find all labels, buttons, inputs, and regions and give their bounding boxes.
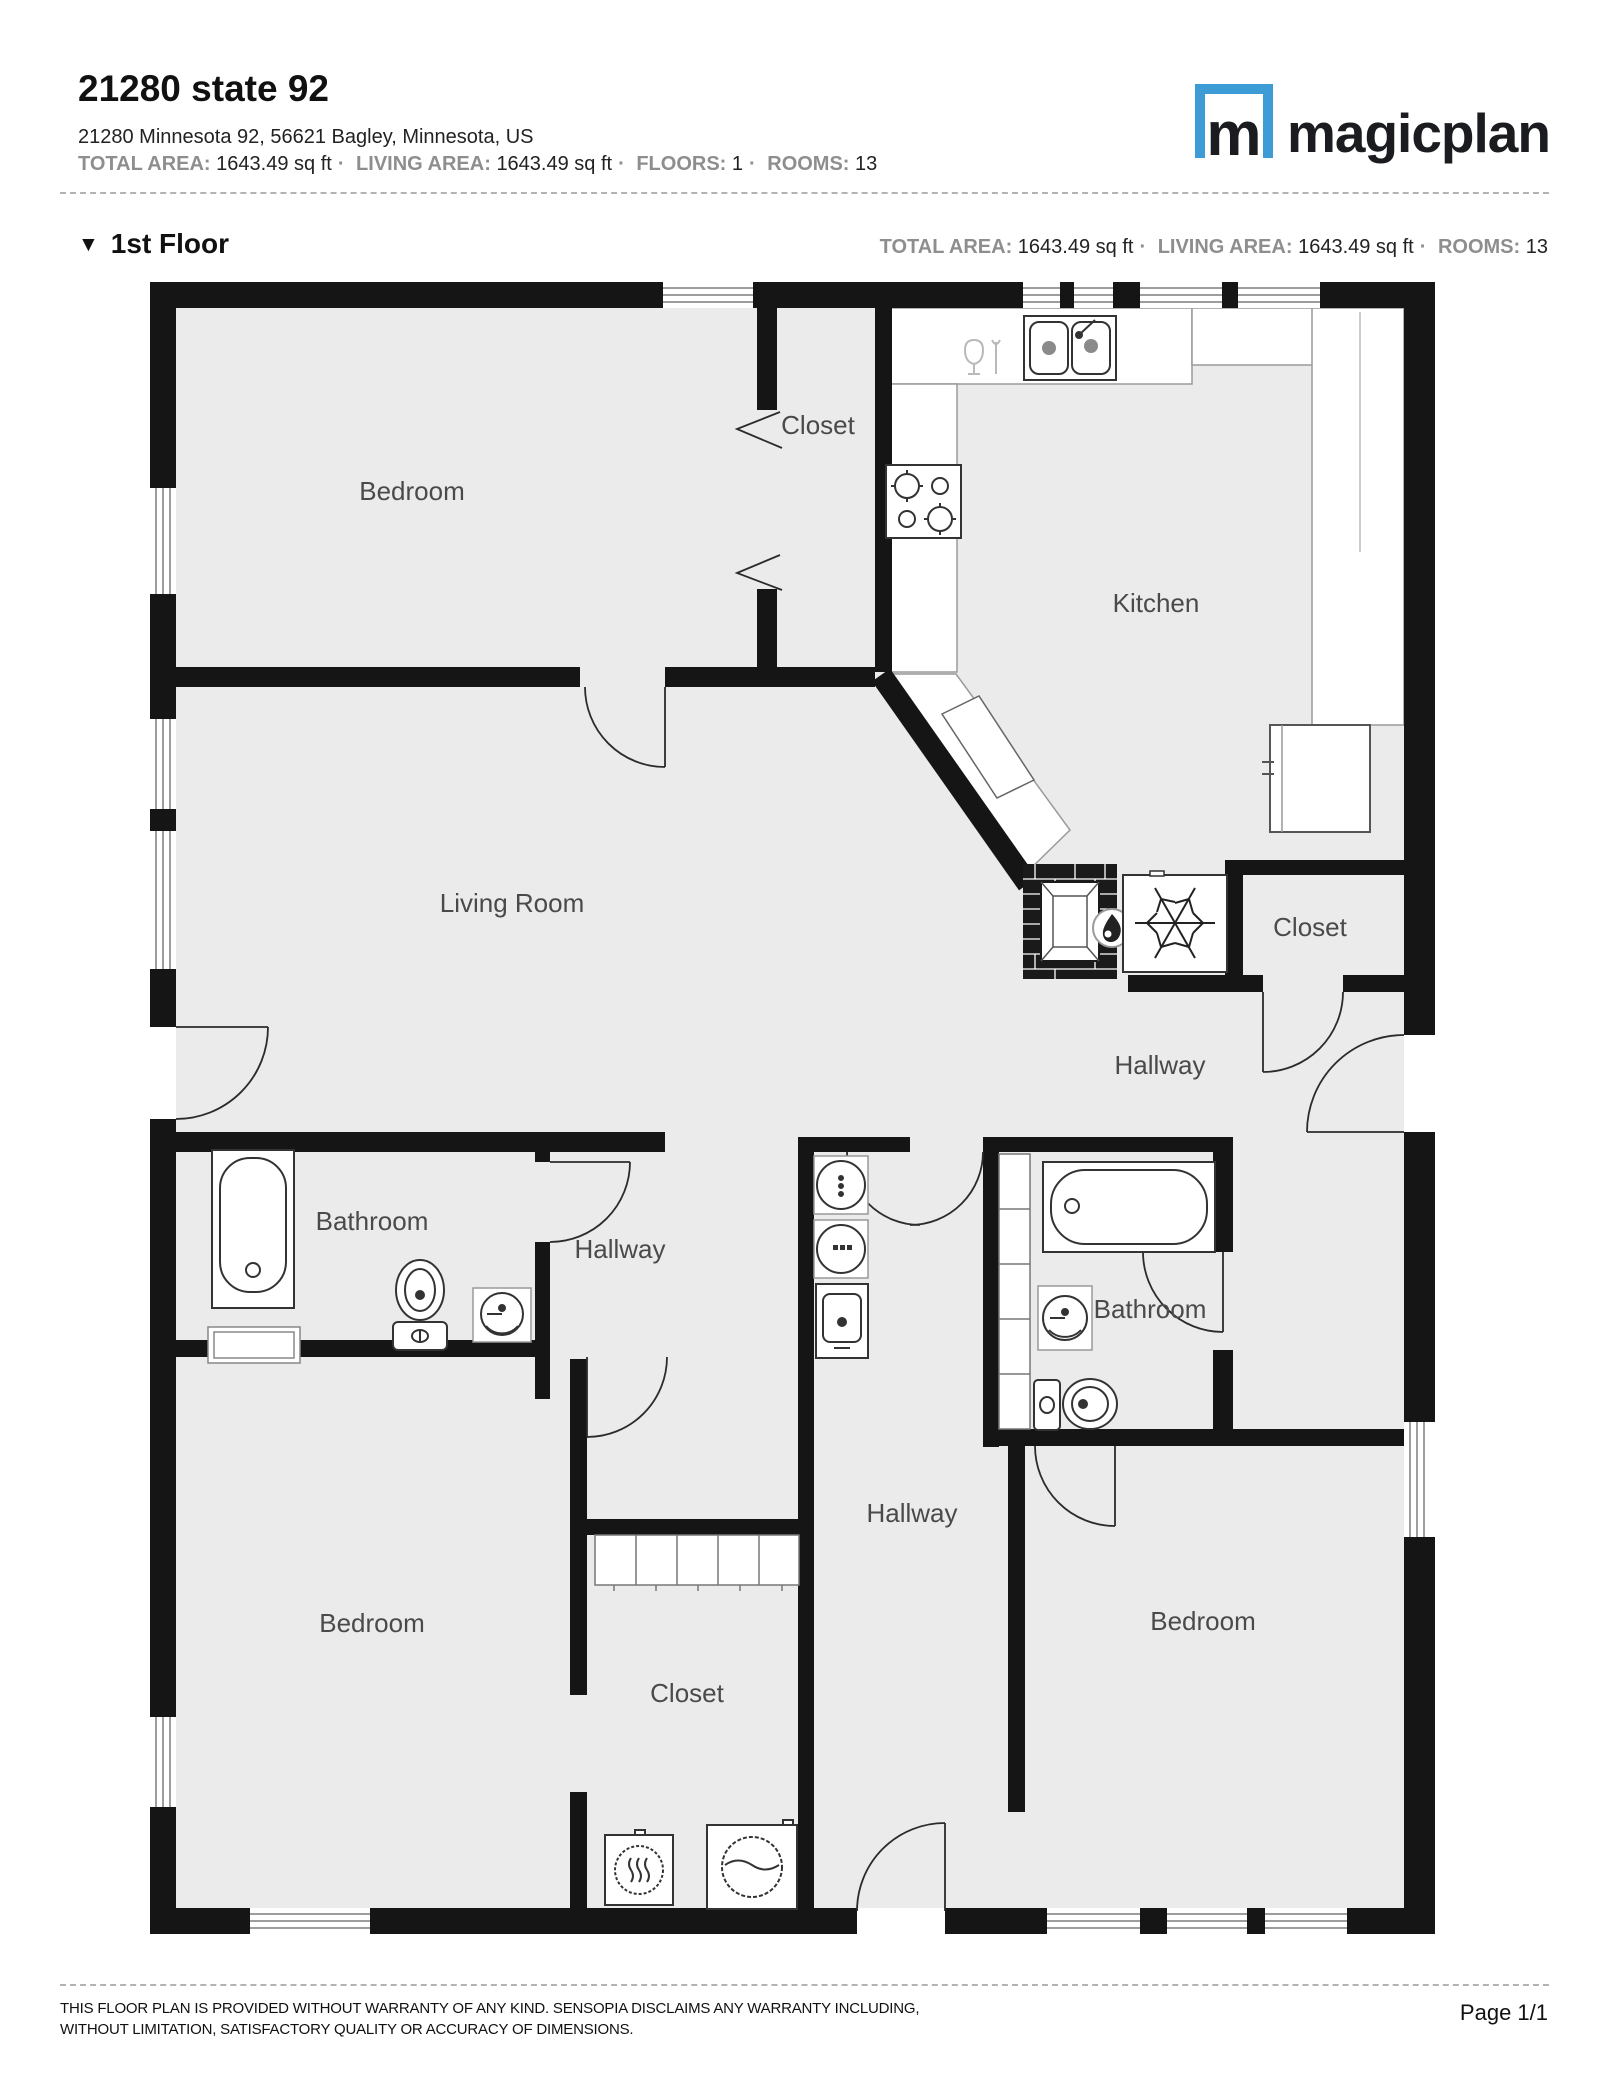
dot-separator: · <box>1133 236 1152 258</box>
dot-separator: · <box>1414 236 1433 258</box>
window-top-sink <box>1023 282 1113 308</box>
room-label-bedroom-bl: Bedroom <box>319 1608 425 1638</box>
property-address: 21280 Minnesota 92, 56621 Bagley, Minnes… <box>78 126 534 149</box>
floor-area <box>163 295 1422 1921</box>
floor-living-area-value: 1643.49 sq ft <box>1298 236 1414 258</box>
floor-rooms-label: ROOMS: <box>1438 236 1520 258</box>
disclaimer-line2: WITHOUT LIMITATION, SATISFACTORY QUALITY… <box>60 2019 919 2040</box>
bathtub-right-icon <box>1043 1162 1215 1252</box>
window-bottom-bedroom-bl <box>250 1908 370 1934</box>
property-meta: TOTAL AREA: 1643.49 sq ft· LIVING AREA: … <box>78 153 877 176</box>
bathroom-l-cabinet <box>208 1327 300 1363</box>
floors-label: FLOORS: <box>636 153 726 175</box>
window-top-right <box>1140 282 1320 308</box>
room-label-closet-tm: Closet <box>781 410 855 440</box>
washer-top-icon <box>814 1156 868 1214</box>
room-label-bedroom-br: Bedroom <box>1150 1606 1256 1636</box>
floor-toggle[interactable]: ▼ 1st Floor <box>78 228 229 260</box>
room-label-bathroom-r: Bathroom <box>1094 1294 1207 1324</box>
magicplan-logo: m magicplan <box>1195 84 1550 158</box>
rooms-value: 13 <box>855 153 877 175</box>
disclaimer-line1: THIS FLOOR PLAN IS PROVIDED WITHOUT WARR… <box>60 1998 919 2019</box>
total-area-label: TOTAL AREA: <box>78 153 211 175</box>
washing-machine-icon <box>707 1820 797 1909</box>
front-door-gap <box>150 1027 176 1119</box>
floor-name: 1st Floor <box>111 228 229 260</box>
total-area-value: 1643.49 sq ft <box>216 153 332 175</box>
washbasin-right-icon <box>1038 1286 1092 1350</box>
kitchen-sink-icon <box>1024 316 1116 380</box>
page-title: 21280 state 92 <box>78 68 329 110</box>
room-label-hallway-l: Hallway <box>574 1234 665 1264</box>
room-label-living-room: Living Room <box>440 888 585 918</box>
dot-separator: · <box>612 153 631 175</box>
air-conditioner-icon <box>1123 871 1227 972</box>
floors-value: 1 <box>732 153 743 175</box>
window-left-living <box>150 719 176 969</box>
window-left-bedroom-bl <box>150 1717 176 1807</box>
washer-bottom-icon <box>814 1220 868 1278</box>
window-top-closet <box>663 282 753 308</box>
toilet-right-icon <box>1034 1379 1117 1430</box>
dryer-icon <box>605 1830 673 1905</box>
water-heater-icon <box>1262 725 1370 832</box>
window-right-bedroom-br <box>1404 1422 1435 1537</box>
bottom-door-gap <box>857 1908 945 1934</box>
stove-icon <box>886 465 961 538</box>
floor-total-area-value: 1643.49 sq ft <box>1018 236 1134 258</box>
room-label-closet-bm: Closet <box>650 1678 724 1708</box>
bathtub-left-icon <box>212 1150 294 1308</box>
rooms-label: ROOMS: <box>767 153 849 175</box>
room-label-closet-mr: Closet <box>1273 912 1347 942</box>
floor-total-area-label: TOTAL AREA: <box>880 236 1013 258</box>
dot-separator: · <box>743 153 762 175</box>
collapse-triangle-icon[interactable]: ▼ <box>78 234 99 255</box>
header-divider <box>60 192 1549 194</box>
toilet-left-icon <box>393 1260 447 1350</box>
room-label-hallway-r: Hallway <box>1114 1050 1205 1080</box>
dot-separator: · <box>332 153 351 175</box>
living-area-label: LIVING AREA: <box>356 153 491 175</box>
floor-rooms-value: 13 <box>1526 236 1548 258</box>
footer-divider <box>60 1984 1549 1986</box>
room-label-kitchen: Kitchen <box>1113 588 1200 618</box>
room-label-bathroom-l: Bathroom <box>316 1206 429 1236</box>
disclaimer: THIS FLOOR PLAN IS PROVIDED WITHOUT WARR… <box>60 1998 919 2040</box>
logo-m: m <box>1206 113 1261 158</box>
page-number: Page 1/1 <box>1460 2000 1548 2026</box>
linen-shelves <box>999 1154 1030 1429</box>
magicplan-monogram-icon: m <box>1195 84 1273 158</box>
floor-plan: Bedroom Closet Kitchen Living Room Close… <box>150 282 1435 1934</box>
room-label-bedroom-tl: Bedroom <box>359 476 465 506</box>
washbasin-left-icon <box>473 1288 531 1342</box>
window-bottom-bedroom-br <box>1047 1908 1347 1934</box>
rear-door-gap <box>1404 1035 1435 1132</box>
magicplan-wordmark: magicplan <box>1287 109 1550 159</box>
room-label-hallway-c: Hallway <box>866 1498 957 1528</box>
floor-living-area-label: LIVING AREA: <box>1158 236 1293 258</box>
window-left-bedroom <box>150 488 176 594</box>
floor-meta: TOTAL AREA: 1643.49 sq ft· LIVING AREA: … <box>880 236 1548 259</box>
wardrobe-icon <box>595 1535 799 1591</box>
laundry-sink-icon <box>816 1284 868 1358</box>
living-area-value: 1643.49 sq ft <box>496 153 612 175</box>
